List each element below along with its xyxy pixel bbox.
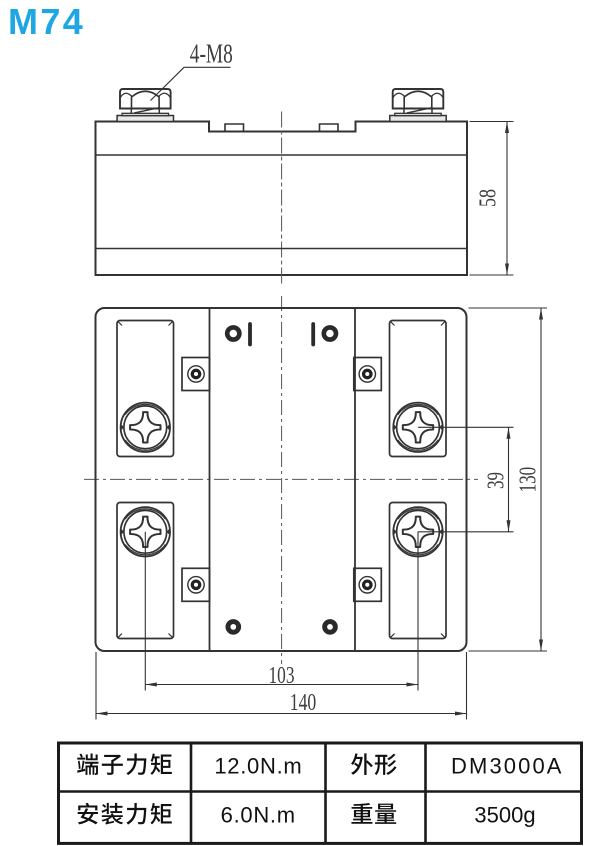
svg-text:58: 58 [475, 189, 502, 207]
svg-text:130: 130 [515, 467, 542, 493]
svg-text:140: 140 [290, 689, 317, 716]
svg-text:4-M8: 4-M8 [190, 39, 233, 69]
svg-text:12.0N.m: 12.0N.m [214, 754, 302, 779]
svg-text:DM3000A: DM3000A [451, 754, 564, 779]
svg-text:39: 39 [483, 472, 510, 489]
svg-text:103: 103 [269, 662, 295, 689]
svg-text:3500g: 3500g [474, 803, 535, 828]
svg-text:6.0N.m: 6.0N.m [221, 803, 296, 828]
